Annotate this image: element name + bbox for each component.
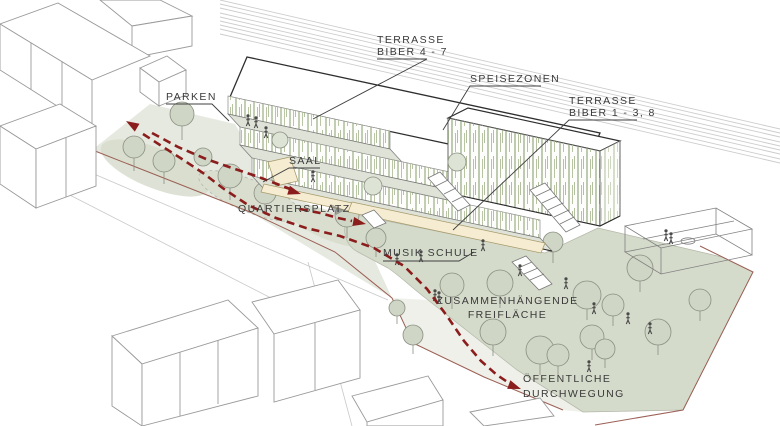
label-quartiersplatz: QUARTIERSPLATZ — [238, 203, 351, 215]
label-saal: SAAL — [289, 155, 321, 167]
label-freiflaeche-line1: ZUSAMMENHÄNGENDE — [425, 295, 590, 307]
label-parken: PARKEN — [166, 91, 217, 103]
label-terrasse-biber-1-3-8-line2: BIBER 1 - 3, 8 — [569, 107, 656, 119]
label-terrasse-biber-1-3-8-line1: TERRASSE — [569, 95, 637, 107]
label-terrasse-biber-4-7-line2: BIBER 4 - 7 — [377, 46, 448, 58]
label-speisezonen: SPEISEZONEN — [470, 73, 560, 85]
label-durchwegung-line1: ÖFFENTLICHE — [523, 373, 611, 385]
label-terrasse-biber-4-7-line1: TERRASSE — [377, 34, 445, 46]
label-durchwegung-line2: DURCHWEGUNG — [523, 388, 625, 400]
diagram-graphics — [0, 0, 780, 426]
site-diagram: PARKEN TERRASSE BIBER 4 - 7 SPEISEZONEN … — [0, 0, 780, 426]
label-freiflaeche-line2: FREIFLÄCHE — [425, 309, 590, 321]
label-musik-schule: MUSIK SCHULE — [383, 247, 479, 259]
